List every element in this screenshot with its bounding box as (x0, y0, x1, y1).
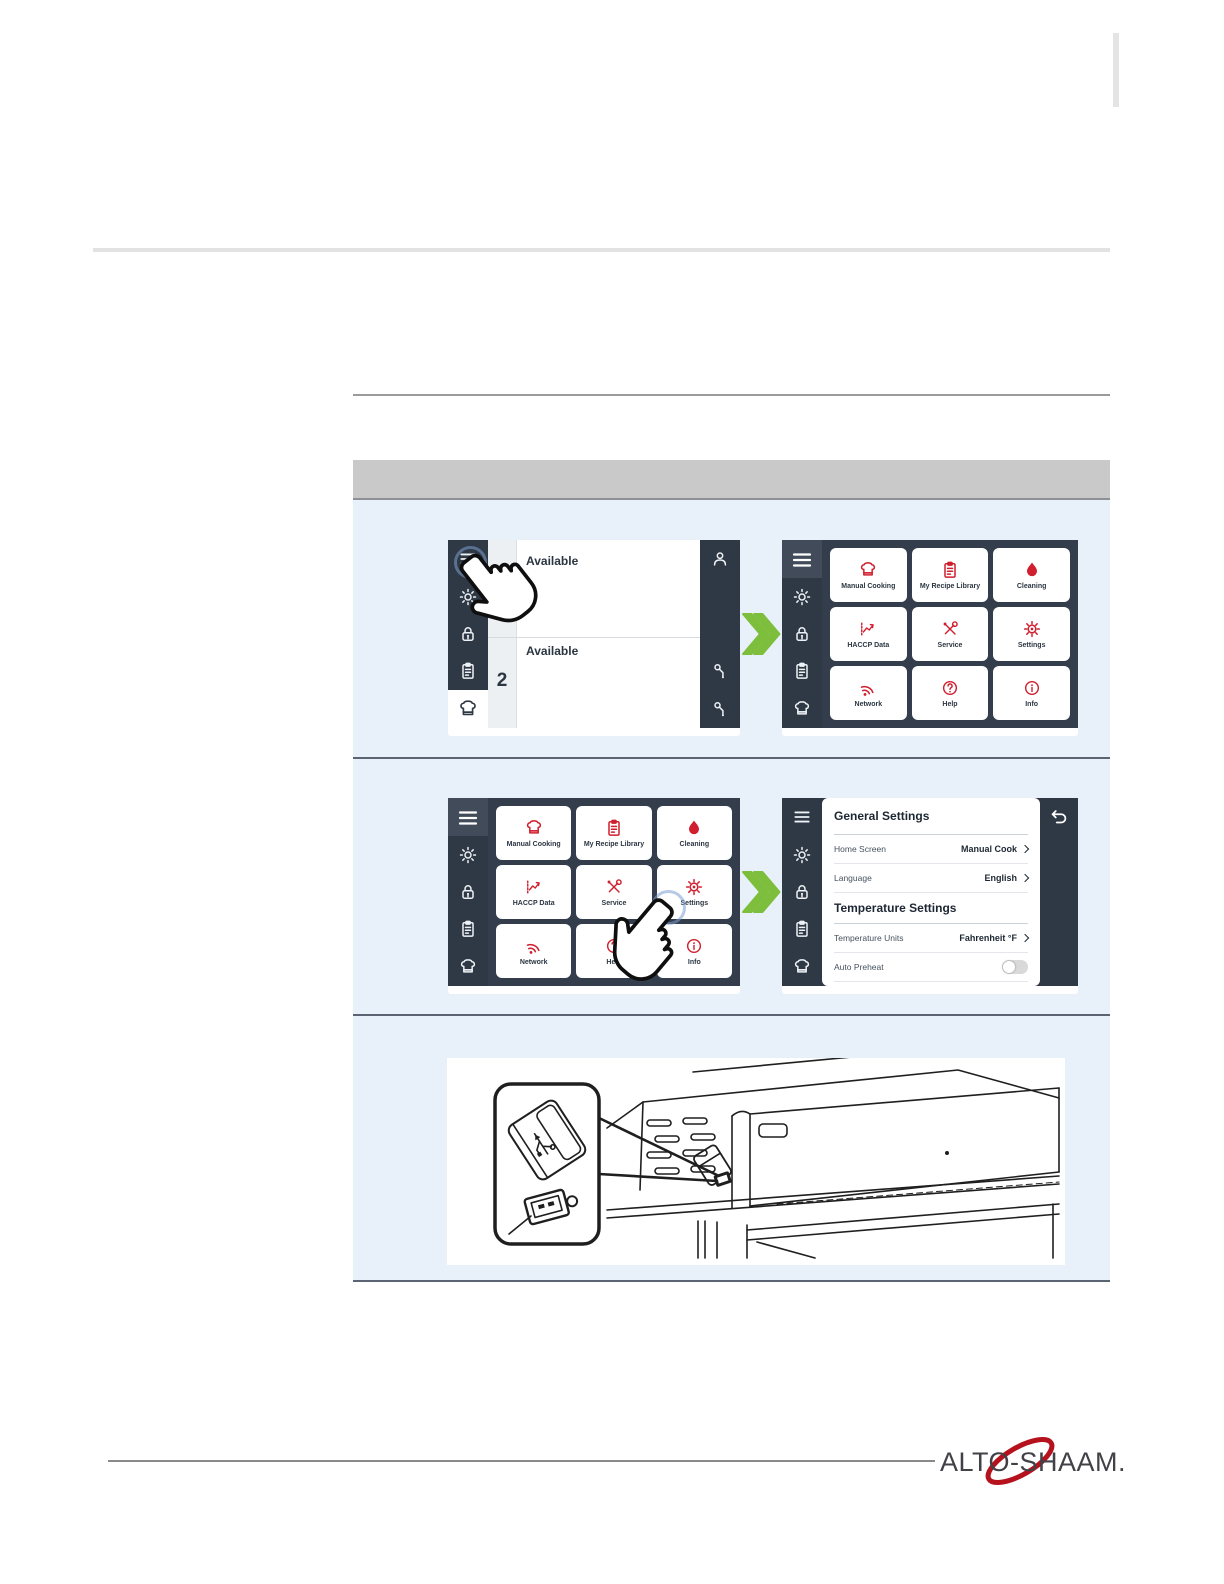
chevron-right-icon (1021, 845, 1029, 853)
sidebar-rail (782, 798, 822, 986)
menu-tab-active[interactable] (448, 798, 488, 836)
section-divider-line (353, 394, 1110, 396)
settings-row-language[interactable]: Language English (834, 864, 1028, 893)
screenshot-settings-screen: General Settings Home Screen Manual Cook… (782, 798, 1078, 994)
table-header-bar (353, 460, 1110, 500)
page-margin-bar (1113, 33, 1119, 107)
table-row-separator (353, 757, 1110, 759)
droplet-icon (684, 818, 704, 838)
chart-icon (524, 877, 544, 897)
auto-preheat-toggle-off[interactable] (1002, 960, 1028, 974)
recipes-icon[interactable] (458, 661, 478, 681)
tile-haccp-data[interactable]: HACCP Data (496, 865, 571, 919)
tile-info[interactable]: Info (993, 666, 1070, 720)
recipes-icon[interactable] (458, 919, 478, 939)
oven-ui-home: Available Available 2 (448, 540, 740, 728)
tile-help[interactable]: Help (912, 666, 989, 720)
lock-icon[interactable] (458, 882, 478, 902)
screenshot-menu-tap-settings: Manual Cooking My Recipe Library Cleanin… (448, 798, 740, 994)
probe-icon[interactable] (710, 661, 730, 681)
settings-section-title: General Settings (834, 798, 1028, 835)
menu-icon (790, 548, 814, 572)
screenshot-menu-screen: Manual Cooking My Recipe Library Cleanin… (782, 540, 1078, 736)
chef-hat-icon[interactable] (792, 957, 812, 977)
oven-line-drawing (447, 1058, 1065, 1265)
lock-icon[interactable] (792, 624, 812, 644)
menu-grid: Manual Cooking My Recipe Library Cleanin… (822, 540, 1078, 728)
network-icon (858, 678, 878, 698)
recipe-book-icon (604, 818, 624, 838)
tools-icon (604, 877, 624, 897)
recipes-icon[interactable] (792, 919, 812, 939)
tile-network[interactable]: Network (496, 924, 571, 978)
manual-cooking-tab-active[interactable] (448, 690, 488, 728)
settings-row-home-screen[interactable]: Home Screen Manual Cook (834, 835, 1028, 864)
tile-network[interactable]: Network (830, 666, 907, 720)
tile-manual-cooking[interactable]: Manual Cooking (496, 806, 571, 860)
tile-my-recipe-library[interactable]: My Recipe Library (576, 806, 651, 860)
brightness-icon[interactable] (458, 845, 478, 865)
shelf-2-number: 2 (488, 670, 516, 692)
chef-hat-icon (524, 818, 544, 838)
shelf-row-divider (488, 637, 700, 638)
info-icon (1022, 678, 1042, 698)
tile-manual-cooking[interactable]: Manual Cooking (830, 548, 907, 602)
screenshot-home-screen: Available Available 2 (448, 540, 740, 736)
chart-icon (858, 619, 878, 639)
recipe-book-icon (940, 560, 960, 580)
chef-hat-icon (457, 698, 479, 720)
green-double-chevron (741, 608, 781, 660)
gear-icon (1022, 619, 1042, 639)
chevron-right-icon (1021, 874, 1029, 882)
toggle-knob (1003, 961, 1015, 973)
clipped-settings-row (834, 982, 1028, 986)
shelf-1-status[interactable]: Available (526, 554, 578, 568)
shelf-2-status[interactable]: Available (526, 644, 578, 658)
oven-ui-menu: Manual Cooking My Recipe Library Cleanin… (448, 798, 740, 986)
alto-shaam-logo: ALTO-SHAAM. (940, 1430, 1140, 1492)
table-row-separator (353, 1014, 1110, 1016)
manual-page: Available Available 2 (0, 0, 1224, 1584)
brightness-icon[interactable] (792, 587, 812, 607)
oven-ui-settings: General Settings Home Screen Manual Cook… (782, 798, 1078, 986)
oven-ui-menu: Manual Cooking My Recipe Library Cleanin… (782, 540, 1078, 728)
tile-settings[interactable]: Settings (993, 607, 1070, 661)
gear-icon (684, 877, 704, 897)
menu-icon[interactable] (792, 807, 812, 827)
help-icon (940, 678, 960, 698)
droplet-icon (1022, 560, 1042, 580)
tile-service[interactable]: Service (912, 607, 989, 661)
chef-hat-icon (858, 560, 878, 580)
tile-cleaning[interactable]: Cleaning (657, 806, 732, 860)
back-arrow-icon[interactable] (1048, 806, 1070, 828)
tile-my-recipe-library[interactable]: My Recipe Library (912, 548, 989, 602)
chef-hat-icon[interactable] (458, 957, 478, 977)
settings-row-auto-preheat[interactable]: Auto Preheat (834, 953, 1028, 982)
recipes-icon[interactable] (792, 661, 812, 681)
sidebar-rail (782, 540, 822, 728)
top-divider-line (93, 248, 1110, 252)
chef-hat-icon[interactable] (792, 699, 812, 719)
logo-wordmark: ALTO-SHAAM. (940, 1447, 1126, 1477)
green-double-chevron (741, 866, 781, 918)
settings-row-temperature-units[interactable]: Temperature Units Fahrenheit °F (834, 924, 1028, 953)
settings-panel: General Settings Home Screen Manual Cook… (822, 798, 1040, 986)
user-icon[interactable] (710, 549, 730, 569)
menu-tab-active[interactable] (782, 540, 822, 578)
menu-icon (456, 806, 480, 830)
network-icon (524, 936, 544, 956)
tools-icon (940, 619, 960, 639)
tile-haccp-data[interactable]: HACCP Data (830, 607, 907, 661)
probe-icon[interactable] (710, 699, 730, 719)
settings-section-title: Temperature Settings (834, 893, 1028, 924)
sidebar-rail (448, 798, 488, 986)
right-rail (700, 540, 740, 728)
tile-cleaning[interactable]: Cleaning (993, 548, 1070, 602)
usb-port-illustration (447, 1058, 1065, 1265)
brightness-icon[interactable] (792, 845, 812, 865)
lock-icon[interactable] (792, 882, 812, 902)
chevron-right-icon (1021, 934, 1029, 942)
footer-rule (108, 1460, 935, 1462)
lock-icon[interactable] (458, 624, 478, 644)
